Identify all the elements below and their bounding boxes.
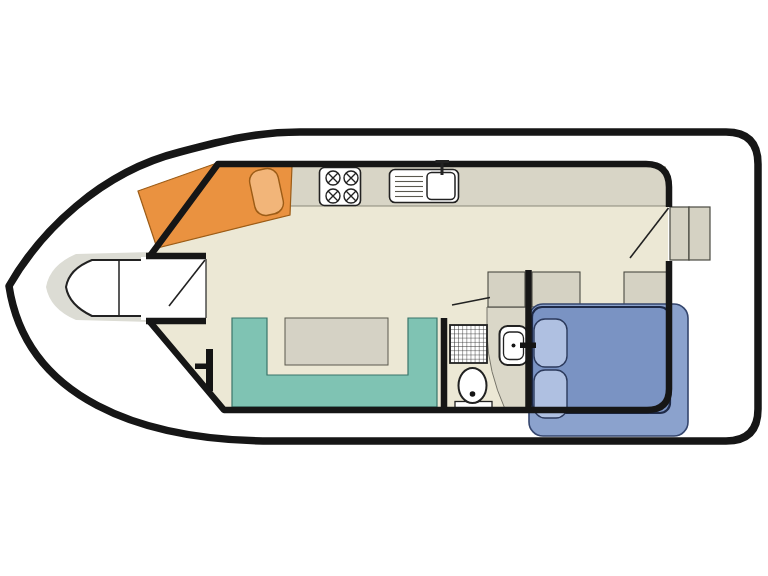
- basin-tap: [520, 343, 536, 349]
- wardrobe-mid: [532, 272, 580, 307]
- step-1: [670, 207, 689, 260]
- toilet-bowl: [459, 368, 487, 403]
- bow-entry: [141, 257, 206, 320]
- floorplan-stage: [0, 0, 768, 576]
- bed-pillow-1: [534, 319, 567, 367]
- shower-tray: [450, 325, 487, 363]
- hob: [320, 168, 361, 206]
- wardrobe-right: [624, 272, 669, 307]
- toilet-drain: [470, 391, 476, 397]
- steering-arm: [195, 364, 212, 370]
- bow-seat: [66, 260, 147, 316]
- step-2: [689, 207, 710, 260]
- boat-floorplan: [0, 0, 768, 576]
- sink-basin: [427, 173, 455, 200]
- washbasin-drain: [512, 344, 516, 348]
- sink-unit: [390, 170, 459, 203]
- steering-post: [206, 349, 213, 391]
- dinette-table: [285, 318, 388, 365]
- wardrobe-left: [488, 272, 525, 307]
